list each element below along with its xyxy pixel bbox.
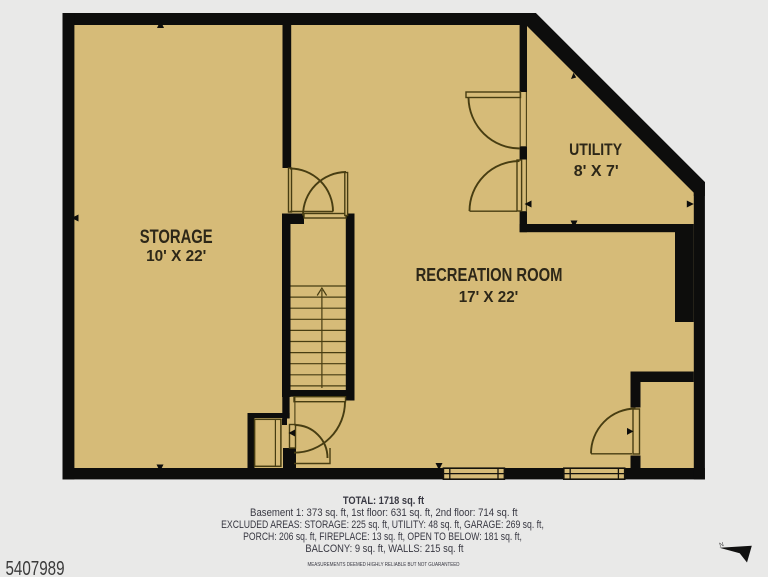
svg-text:EXCLUDED AREAS: STORAGE: 225 s: EXCLUDED AREAS: STORAGE: 225 sq. ft, UTI… (221, 519, 544, 531)
svg-text:10' X 22': 10' X 22' (146, 248, 206, 265)
svg-text:5407989: 5407989 (6, 557, 65, 577)
svg-text:STORAGE: STORAGE (140, 225, 213, 248)
svg-text:17' X 22': 17' X 22' (459, 289, 519, 306)
svg-text:8' X 7': 8' X 7' (574, 163, 619, 180)
svg-text:BALCONY: 9 sq. ft, WALLS: 215: BALCONY: 9 sq. ft, WALLS: 215 sq. ft (305, 543, 463, 555)
svg-text:UTILITY: UTILITY (569, 141, 622, 159)
svg-text:TOTAL: 1718 sq. ft: TOTAL: 1718 sq. ft (343, 495, 425, 507)
svg-text:Basement 1: 373 sq. ft, 1st fl: Basement 1: 373 sq. ft, 1st floor: 631 s… (250, 507, 518, 519)
svg-text:RECREATION ROOM: RECREATION ROOM (416, 264, 563, 285)
svg-text:PORCH: 206 sq. ft, FIREPLACE:: PORCH: 206 sq. ft, FIREPLACE: 13 sq. ft,… (243, 531, 522, 543)
svg-text:MEASUREMENTS DEEMED HIGHLY REL: MEASUREMENTS DEEMED HIGHLY RELIABLE BUT … (308, 562, 461, 568)
